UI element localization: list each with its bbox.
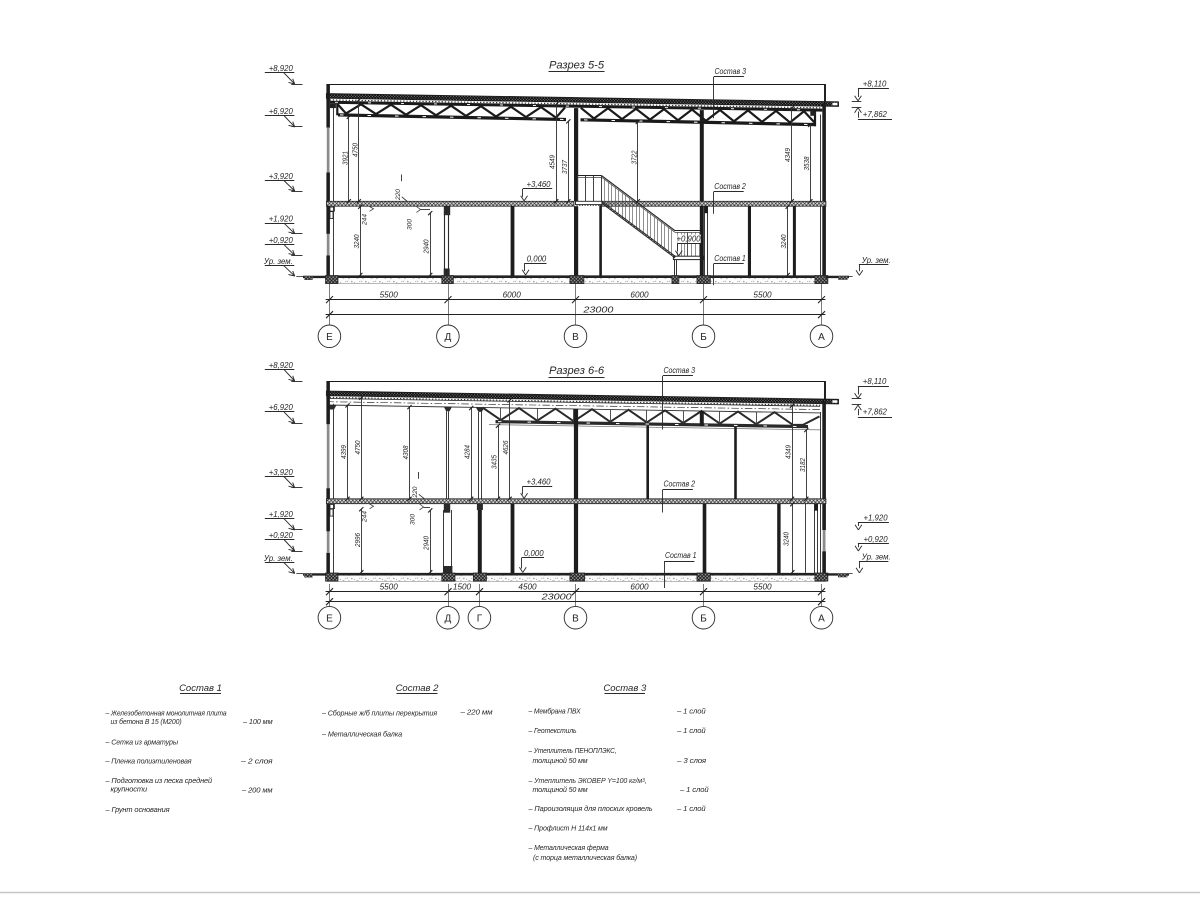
svg-text:3435: 3435 bbox=[492, 455, 499, 469]
svg-text:– 200 мм: – 200 мм bbox=[241, 786, 273, 795]
svg-text:– 1 слой: – 1 слой bbox=[676, 707, 706, 716]
svg-text:Б: Б bbox=[700, 613, 707, 624]
svg-text:Состав 1: Состав 1 bbox=[665, 551, 697, 560]
svg-text:– Мембрана ПВХ: – Мембрана ПВХ bbox=[528, 707, 582, 716]
svg-text:2996: 2996 bbox=[355, 533, 362, 548]
svg-text:– Утеплитель ПЕНОПЛЭКС,: – Утеплитель ПЕНОПЛЭКС, bbox=[528, 746, 617, 755]
svg-text:+6,920: +6,920 bbox=[269, 403, 294, 412]
svg-text:4626: 4626 bbox=[503, 440, 510, 454]
svg-text:4349: 4349 bbox=[785, 148, 792, 162]
svg-text:– Сборные ж/б плиты перекрытия: – Сборные ж/б плиты перекрытия bbox=[321, 709, 437, 718]
svg-text:– 2 слоя: – 2 слоя bbox=[240, 757, 273, 766]
svg-text:(с торца металлическая балка): (с торца металлическая балка) bbox=[533, 853, 638, 862]
svg-text:Состав 3: Состав 3 bbox=[664, 366, 696, 375]
svg-text:Ур. зем.: Ур. зем. bbox=[263, 554, 293, 563]
svg-text:3921: 3921 bbox=[342, 151, 349, 165]
svg-text:300: 300 bbox=[410, 514, 417, 525]
svg-text:Состав 1: Состав 1 bbox=[714, 254, 746, 263]
svg-text:из бетона В 15 (М200): из бетона В 15 (М200) bbox=[111, 717, 183, 726]
svg-text:– Утеплитель ЭКОВЕР Y=100 кг/м: – Утеплитель ЭКОВЕР Y=100 кг/м3, bbox=[528, 776, 647, 785]
svg-text:5500: 5500 bbox=[753, 290, 772, 299]
svg-text:Ур. зем.: Ур. зем. bbox=[861, 553, 891, 562]
svg-text:3538: 3538 bbox=[804, 156, 811, 170]
svg-text:+1,920: +1,920 bbox=[269, 215, 294, 224]
svg-text:В: В bbox=[572, 332, 579, 343]
svg-text:4399: 4399 bbox=[341, 445, 348, 459]
svg-text:2940: 2940 bbox=[424, 536, 431, 551]
svg-text:Ур. зем.: Ур. зем. bbox=[263, 257, 293, 266]
svg-text:3240: 3240 bbox=[354, 234, 361, 248]
svg-text:А: А bbox=[818, 332, 825, 343]
svg-text:+7,862: +7,862 bbox=[863, 408, 888, 417]
svg-text:6000: 6000 bbox=[630, 583, 649, 592]
svg-text:Е: Е bbox=[326, 613, 333, 624]
svg-text:+1,920: +1,920 bbox=[269, 510, 294, 519]
svg-text:4284: 4284 bbox=[465, 445, 472, 459]
svg-text:Состав 3: Состав 3 bbox=[715, 67, 747, 76]
svg-text:Состав 2: Состав 2 bbox=[714, 182, 746, 191]
svg-text:5500: 5500 bbox=[380, 290, 399, 299]
svg-text:– 220 мм: – 220 мм bbox=[459, 707, 493, 716]
svg-text:+3,920: +3,920 bbox=[269, 172, 294, 181]
svg-text:– 3 слоя: – 3 слоя bbox=[676, 756, 706, 765]
svg-text:+3,920: +3,920 bbox=[269, 468, 294, 477]
svg-text:+8,110: +8,110 bbox=[863, 377, 887, 386]
svg-text:Д: Д bbox=[445, 613, 452, 624]
svg-text:– Металлическая балка: – Металлическая балка bbox=[321, 729, 402, 738]
svg-text:244: 244 bbox=[362, 214, 369, 226]
svg-text:– Профлист Н 114х1 мм: – Профлист Н 114х1 мм bbox=[528, 824, 609, 833]
svg-text:– Грунт основания: – Грунт основания bbox=[105, 805, 170, 814]
svg-text:+3,460: +3,460 bbox=[526, 180, 551, 189]
svg-text:4549: 4549 bbox=[550, 155, 557, 169]
svg-text:4750: 4750 bbox=[355, 440, 362, 454]
svg-text:23000: 23000 bbox=[582, 306, 614, 315]
svg-text:+1,920: +1,920 bbox=[864, 513, 889, 522]
svg-text:220: 220 bbox=[412, 486, 419, 498]
svg-text:+8,110: +8,110 bbox=[863, 80, 887, 89]
svg-text:Разрез 6-6: Разрез 6-6 bbox=[549, 365, 605, 377]
svg-text:6000: 6000 bbox=[503, 290, 522, 299]
svg-text:крупности: крупности bbox=[111, 785, 148, 794]
svg-text:4500: 4500 bbox=[518, 583, 537, 592]
svg-text:Ур. зем.: Ур. зем. bbox=[861, 256, 891, 265]
svg-text:– Пленка полиэтиленовая: – Пленка полиэтиленовая bbox=[105, 757, 192, 766]
svg-text:+6,920: +6,920 bbox=[269, 107, 294, 116]
svg-text:+0,920: +0,920 bbox=[864, 535, 889, 544]
svg-text:+7,862: +7,862 bbox=[863, 110, 888, 119]
svg-text:– Сетка из арматуры: – Сетка из арматуры bbox=[105, 737, 179, 746]
svg-text:6000: 6000 bbox=[630, 290, 649, 299]
svg-text:5500: 5500 bbox=[380, 583, 399, 592]
svg-text:+3,460: +3,460 bbox=[526, 477, 551, 486]
svg-text:300: 300 bbox=[407, 219, 414, 230]
svg-text:2940: 2940 bbox=[424, 239, 431, 254]
svg-text:4349: 4349 bbox=[786, 445, 793, 459]
svg-text:1500: 1500 bbox=[453, 583, 472, 592]
svg-text:Состав 1: Состав 1 bbox=[179, 683, 222, 694]
svg-text:3240: 3240 bbox=[781, 234, 788, 248]
svg-text:+0,900: +0,900 bbox=[676, 235, 701, 244]
svg-text:– 1 слой: – 1 слой bbox=[679, 785, 709, 794]
svg-text:В: В bbox=[572, 613, 579, 624]
svg-text:Состав 3: Состав 3 bbox=[603, 683, 647, 694]
svg-text:– Геотекстиль: – Геотекстиль bbox=[528, 726, 577, 735]
svg-text:+0,920: +0,920 bbox=[269, 236, 294, 245]
svg-text:– 100 мм: – 100 мм bbox=[242, 717, 273, 726]
svg-text:4308: 4308 bbox=[403, 445, 410, 459]
svg-text:Состав 2: Состав 2 bbox=[664, 480, 696, 489]
svg-text:3182: 3182 bbox=[800, 458, 807, 472]
svg-text:толщиной 50 мм: толщиной 50 мм bbox=[533, 756, 589, 765]
svg-text:Д: Д bbox=[445, 332, 452, 343]
svg-text:– Пароизоляция для плоских кро: – Пароизоляция для плоских кровель bbox=[528, 804, 653, 813]
svg-text:Б: Б bbox=[700, 332, 707, 343]
svg-text:23000: 23000 bbox=[540, 593, 572, 602]
svg-text:3737: 3737 bbox=[562, 159, 569, 174]
svg-text:толщиной 50 мм: толщиной 50 мм bbox=[533, 785, 589, 794]
svg-text:А: А bbox=[818, 613, 825, 624]
svg-text:244: 244 bbox=[362, 511, 369, 523]
svg-text:220: 220 bbox=[395, 189, 402, 201]
svg-text:0,000: 0,000 bbox=[527, 254, 547, 263]
svg-text:3240: 3240 bbox=[783, 532, 790, 546]
svg-text:5500: 5500 bbox=[753, 583, 772, 592]
svg-text:Разрез 5-5: Разрез 5-5 bbox=[549, 59, 605, 71]
svg-text:4750: 4750 bbox=[352, 143, 359, 157]
svg-text:+0,920: +0,920 bbox=[269, 531, 294, 540]
svg-text:0,000: 0,000 bbox=[524, 549, 544, 558]
svg-text:– Металлическая ферма: – Металлическая ферма bbox=[528, 843, 609, 852]
svg-text:+8,920: +8,920 bbox=[269, 361, 294, 370]
svg-text:Е: Е bbox=[326, 332, 333, 343]
svg-text:3722: 3722 bbox=[631, 150, 638, 164]
svg-text:Состав 2: Состав 2 bbox=[396, 683, 440, 694]
svg-text:– 1 слой: – 1 слой bbox=[676, 804, 706, 813]
svg-text:– 1 слой: – 1 слой bbox=[676, 726, 706, 735]
svg-text:Г: Г bbox=[477, 613, 483, 624]
svg-text:+8,920: +8,920 bbox=[269, 64, 294, 73]
